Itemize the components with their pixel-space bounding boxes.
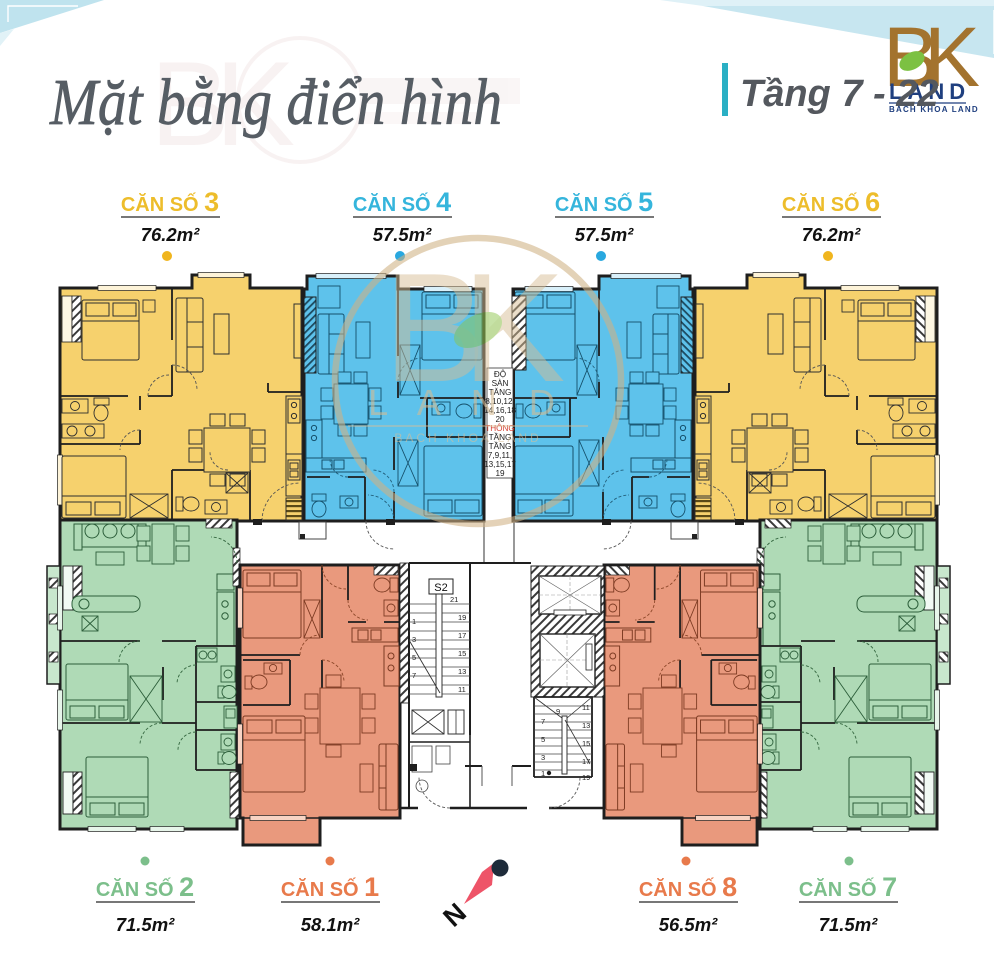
svg-text:Tầng 7 - 22: Tầng 7 - 22 — [740, 73, 939, 115]
svg-text:76.2m²: 76.2m² — [802, 224, 861, 245]
svg-text:19: 19 — [495, 469, 505, 478]
svg-text:19: 19 — [582, 773, 590, 782]
svg-text:19: 19 — [458, 613, 466, 622]
svg-text:BACH KHOA LAND: BACH KHOA LAND — [394, 431, 541, 445]
svg-text:L A N D: L A N D — [368, 382, 566, 423]
svg-text:13: 13 — [458, 667, 466, 676]
svg-text:76.2m²: 76.2m² — [141, 224, 200, 245]
svg-text:71.5m²: 71.5m² — [819, 914, 878, 935]
svg-text:21: 21 — [450, 595, 458, 604]
svg-text:3: 3 — [412, 635, 416, 644]
svg-text:9: 9 — [556, 707, 560, 716]
svg-text:1: 1 — [412, 617, 416, 626]
svg-text:11: 11 — [582, 703, 590, 712]
svg-text:3: 3 — [541, 753, 545, 762]
svg-text:7,9,11,: 7,9,11, — [488, 451, 512, 460]
svg-text:7: 7 — [541, 717, 545, 726]
svg-text:7: 7 — [412, 671, 416, 680]
svg-text:15: 15 — [582, 739, 590, 748]
svg-text:17: 17 — [582, 757, 590, 766]
svg-text:57.5m²: 57.5m² — [575, 224, 634, 245]
svg-text:11: 11 — [458, 685, 466, 694]
svg-text:13,15,17: 13,15,17 — [484, 460, 516, 469]
svg-text:17: 17 — [458, 631, 466, 640]
svg-text:15: 15 — [458, 649, 466, 658]
svg-text:13: 13 — [582, 721, 590, 730]
svg-text:58.1m²: 58.1m² — [301, 914, 360, 935]
svg-text:56.5m²: 56.5m² — [659, 914, 718, 935]
svg-text:S2: S2 — [434, 582, 447, 594]
svg-text:71.5m²: 71.5m² — [116, 914, 175, 935]
svg-text:5: 5 — [412, 653, 416, 662]
svg-text:Mặt bằng điển hình: Mặt bằng điển hình — [49, 66, 502, 139]
svg-text:1: 1 — [541, 769, 545, 778]
svg-text:5: 5 — [541, 735, 545, 744]
